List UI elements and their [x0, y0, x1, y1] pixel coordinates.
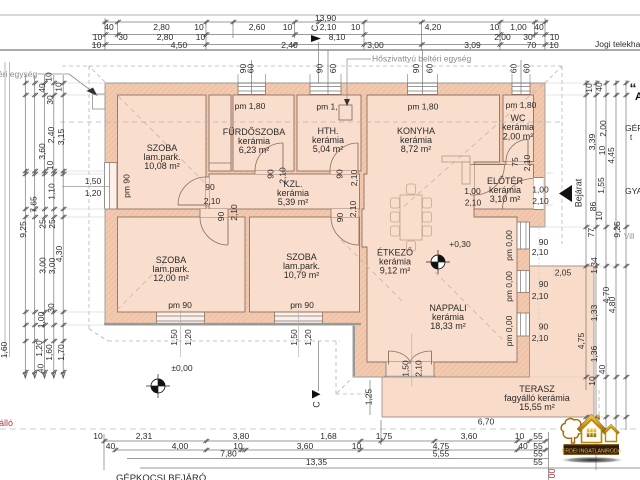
svg-text:13,35: 13,35: [306, 457, 328, 467]
svg-text:1,50: 1,50: [85, 176, 102, 186]
svg-text:pm 1,80: pm 1,80: [408, 102, 439, 112]
svg-text:1,33: 1,33: [589, 304, 599, 321]
svg-text:2,10: 2,10: [532, 291, 549, 301]
svg-text:1,25: 1,25: [364, 388, 374, 405]
svg-text:10: 10: [490, 22, 500, 32]
svg-text:1,20: 1,20: [34, 340, 44, 357]
svg-text:1,55: 1,55: [596, 177, 606, 194]
svg-text:C: C: [312, 401, 322, 408]
svg-text:2,10: 2,10: [229, 204, 239, 221]
svg-text:1,70: 1,70: [56, 344, 66, 361]
svg-text:30: 30: [118, 32, 128, 42]
svg-text:90: 90: [216, 212, 226, 222]
svg-text:ERDEI INGATLANIRODA: ERDEI INGATLANIRODA: [562, 449, 622, 455]
svg-text:10: 10: [44, 72, 54, 82]
svg-text:25: 25: [47, 219, 57, 229]
svg-text:2,10: 2,10: [278, 167, 288, 184]
svg-text:GÉPKOCSI BEJÁRÓ: GÉPKOCSI BEJÁRÓ: [116, 473, 206, 480]
svg-text:1,00: 1,00: [532, 185, 549, 195]
svg-text:40: 40: [106, 441, 116, 451]
svg-text:10: 10: [549, 40, 559, 50]
svg-text:10: 10: [93, 431, 103, 441]
svg-text:2,10: 2,10: [522, 154, 532, 171]
svg-text:15,55 m²: 15,55 m²: [519, 402, 555, 412]
svg-text:9,25: 9,25: [18, 221, 28, 238]
svg-text:1,60: 1,60: [44, 344, 54, 361]
svg-text:1,50: 1,50: [169, 329, 179, 346]
svg-text:3,60: 3,60: [297, 441, 314, 451]
svg-text:1,20: 1,20: [85, 188, 102, 198]
svg-text:3,80: 3,80: [233, 431, 250, 441]
svg-text:77: 77: [586, 228, 596, 238]
svg-text:8,72 m²: 8,72 m²: [401, 144, 432, 154]
svg-text:1,68: 1,68: [320, 431, 337, 441]
svg-text:5,55: 5,55: [433, 449, 450, 459]
svg-text:3,00: 3,00: [367, 40, 384, 50]
svg-text:2,10: 2,10: [204, 196, 221, 206]
svg-text:10: 10: [283, 22, 293, 32]
svg-text:70: 70: [527, 40, 537, 50]
svg-text:60: 60: [246, 64, 256, 74]
svg-text:2,31: 2,31: [136, 431, 153, 441]
svg-text:4,50: 4,50: [171, 40, 188, 50]
svg-text:1,50: 1,50: [289, 329, 299, 346]
svg-text:10: 10: [45, 161, 55, 171]
svg-text:+0,30: +0,30: [449, 239, 471, 249]
svg-text:90: 90: [266, 169, 276, 179]
svg-text:1,20: 1,20: [303, 329, 313, 346]
svg-text:90: 90: [205, 182, 215, 192]
svg-text:3,60: 3,60: [461, 431, 478, 441]
svg-text:5,39 m²: 5,39 m²: [278, 197, 309, 207]
svg-text:40: 40: [597, 365, 607, 375]
svg-text:10: 10: [594, 211, 604, 221]
svg-text:A: A: [635, 91, 640, 103]
svg-text:pm 0,00: pm 0,00: [504, 271, 514, 302]
svg-text:2,10: 2,10: [532, 333, 549, 343]
svg-text:9,12 m²: 9,12 m²: [380, 266, 411, 276]
svg-text:1,00: 1,00: [464, 186, 481, 196]
svg-text:30: 30: [46, 303, 56, 313]
svg-text:kerámia: kerámia: [502, 122, 534, 132]
svg-text:GYA: GYA: [625, 186, 640, 196]
svg-text:90: 90: [539, 322, 549, 332]
svg-text:90: 90: [539, 279, 549, 289]
svg-text:1,10: 1,10: [47, 183, 57, 200]
svg-text:4,20: 4,20: [425, 22, 442, 32]
svg-text:86: 86: [588, 202, 598, 212]
svg-text:2,00: 2,00: [598, 120, 608, 137]
svg-text:10,08 m²: 10,08 m²: [144, 161, 180, 171]
svg-text:30: 30: [45, 95, 55, 105]
svg-text:pm 0,00: pm 0,00: [504, 230, 514, 261]
svg-text:2,00: 2,00: [494, 32, 511, 42]
svg-text:55: 55: [533, 431, 543, 441]
svg-text:±0,00: ±0,00: [171, 363, 192, 373]
svg-text:pm 0,00: pm 0,00: [504, 315, 514, 346]
svg-text:90: 90: [335, 213, 345, 223]
svg-text:40: 40: [534, 22, 544, 32]
svg-text:4,80: 4,80: [607, 296, 617, 313]
svg-text:pm 90: pm 90: [168, 300, 192, 310]
svg-text:40: 40: [36, 364, 46, 374]
svg-text:55: 55: [533, 457, 543, 467]
svg-text:2,10: 2,10: [532, 196, 549, 206]
svg-text:40: 40: [37, 83, 47, 93]
svg-text:90: 90: [315, 64, 325, 74]
svg-text:2,10: 2,10: [532, 247, 549, 257]
svg-text:4,30: 4,30: [54, 245, 64, 262]
svg-text:1,00: 1,00: [36, 311, 46, 328]
svg-text:3,00: 3,00: [38, 257, 48, 274]
svg-text:90: 90: [539, 237, 549, 247]
svg-text:GÉP: GÉP: [625, 123, 640, 133]
svg-text:5,04 m²: 5,04 m²: [313, 144, 344, 154]
svg-text:10: 10: [54, 82, 64, 92]
svg-text:álló: álló: [0, 418, 13, 428]
svg-text:60: 60: [522, 64, 532, 74]
svg-text:60: 60: [328, 64, 338, 74]
svg-text:7,80: 7,80: [220, 449, 237, 459]
svg-text:3,15: 3,15: [56, 128, 66, 145]
svg-text:2,40: 2,40: [46, 126, 56, 143]
svg-text:pm 1,80: pm 1,80: [506, 100, 537, 110]
svg-text:10: 10: [92, 40, 102, 50]
svg-text:10,79 m²: 10,79 m²: [284, 270, 320, 280]
svg-text:25: 25: [38, 219, 48, 229]
svg-text:Jogi telekhatár: Jogi telekhatár: [595, 39, 640, 49]
svg-text:2,10: 2,10: [320, 22, 337, 32]
svg-text:4,45: 4,45: [606, 147, 616, 164]
svg-text:18,33 m²: 18,33 m²: [430, 321, 466, 331]
svg-text:7,65: 7,65: [29, 196, 39, 213]
svg-text:75: 75: [510, 157, 520, 167]
svg-text:90: 90: [335, 169, 345, 179]
svg-text:2,60: 2,60: [249, 22, 266, 32]
svg-text:1,00: 1,00: [510, 22, 527, 32]
svg-text:2,80: 2,80: [153, 22, 170, 32]
svg-text:1,50: 1,50: [401, 360, 411, 377]
svg-text:60: 60: [509, 64, 519, 74]
svg-text:Hőszivattyú beltéri egység: Hőszivattyú beltéri egység: [372, 54, 471, 64]
svg-text:pm 1,: pm 1,: [316, 102, 337, 112]
svg-text:2,10: 2,10: [348, 200, 358, 217]
svg-text:Bejárat: Bejárat: [574, 178, 584, 207]
svg-text:12,00 m²: 12,00 m²: [153, 273, 189, 283]
svg-text:10: 10: [196, 32, 206, 42]
svg-text:8,10: 8,10: [329, 32, 346, 42]
svg-text:3,39: 3,39: [587, 133, 597, 150]
svg-text:1,20: 1,20: [183, 329, 193, 346]
svg-text:2,10: 2,10: [349, 169, 359, 186]
svg-text:9,25: 9,25: [612, 221, 622, 238]
svg-text:4,75: 4,75: [576, 332, 586, 349]
svg-text:2,00 m²: 2,00 m²: [503, 132, 534, 142]
svg-text:2,05: 2,05: [555, 268, 572, 278]
svg-text:Vill: Vill: [624, 232, 635, 241]
svg-text:éri egység: éri egység: [0, 69, 37, 79]
svg-text:40: 40: [518, 441, 528, 451]
svg-text:pm 1,80: pm 1,80: [235, 101, 266, 111]
svg-text:40: 40: [104, 22, 114, 32]
svg-text:C: C: [310, 24, 320, 31]
svg-text:6,23 m²: 6,23 m²: [239, 145, 270, 155]
svg-text:6,70: 6,70: [478, 417, 495, 427]
svg-text:2,10: 2,10: [414, 360, 424, 377]
svg-text:60: 60: [425, 64, 435, 74]
svg-text:90: 90: [411, 64, 421, 74]
svg-text:1,60: 1,60: [0, 341, 9, 358]
svg-text:10: 10: [194, 22, 204, 32]
svg-text:pm 90: pm 90: [290, 300, 314, 310]
svg-text:3,60: 3,60: [37, 143, 47, 160]
svg-text:3,10 m²: 3,10 m²: [490, 194, 521, 204]
svg-text:3,09: 3,09: [464, 40, 481, 50]
svg-text:2,40: 2,40: [281, 40, 298, 50]
svg-text:2,10: 2,10: [465, 198, 482, 208]
svg-text:1,36: 1,36: [589, 345, 599, 362]
svg-text:pm 90: pm 90: [122, 174, 132, 198]
svg-text:4,00: 4,00: [172, 441, 189, 451]
svg-text:10: 10: [351, 22, 361, 32]
